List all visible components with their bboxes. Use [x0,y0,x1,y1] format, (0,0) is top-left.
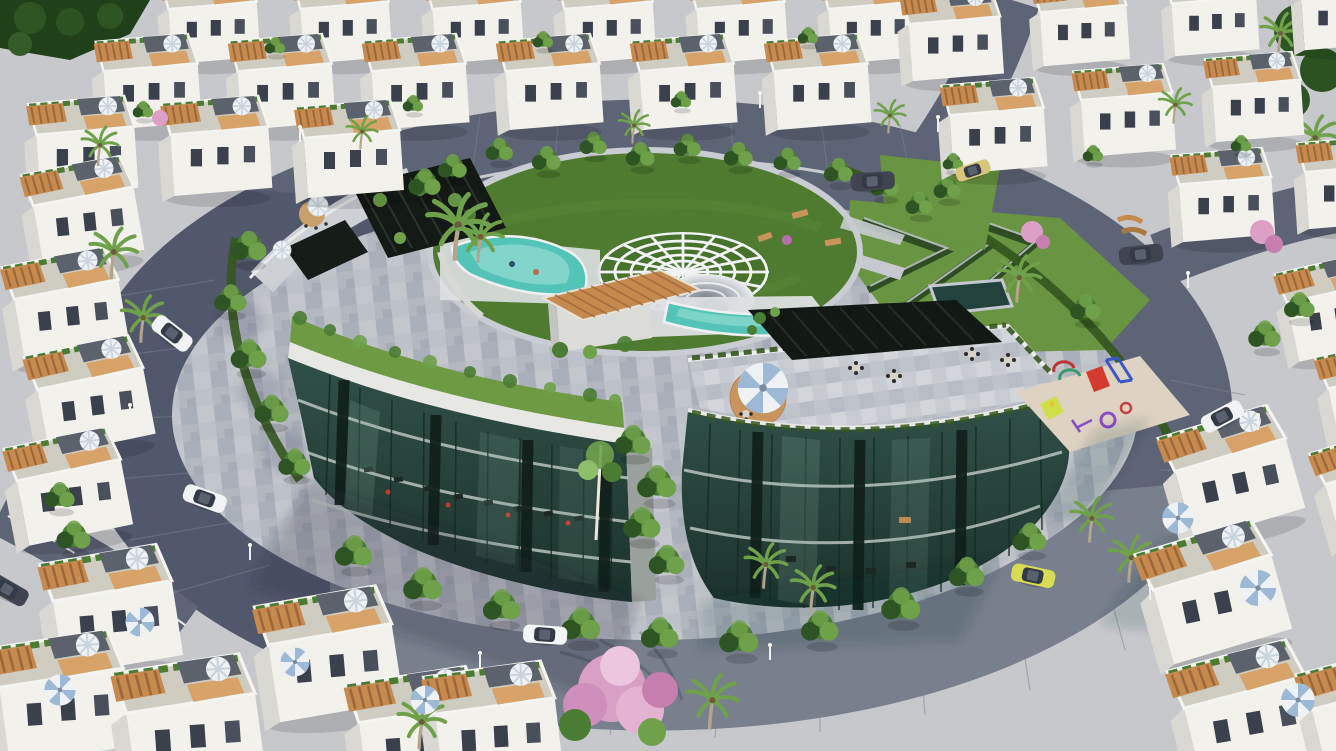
flower-bed [782,235,792,245]
child-figure [1049,401,1055,407]
aerial-render-viewport: Aerial render of a gated residential com… [0,0,1336,751]
swimmer [533,269,539,275]
striped-parasol [738,363,788,413]
swimmer [509,261,515,267]
white-parasol [273,241,291,259]
scene-svg [0,0,1336,751]
